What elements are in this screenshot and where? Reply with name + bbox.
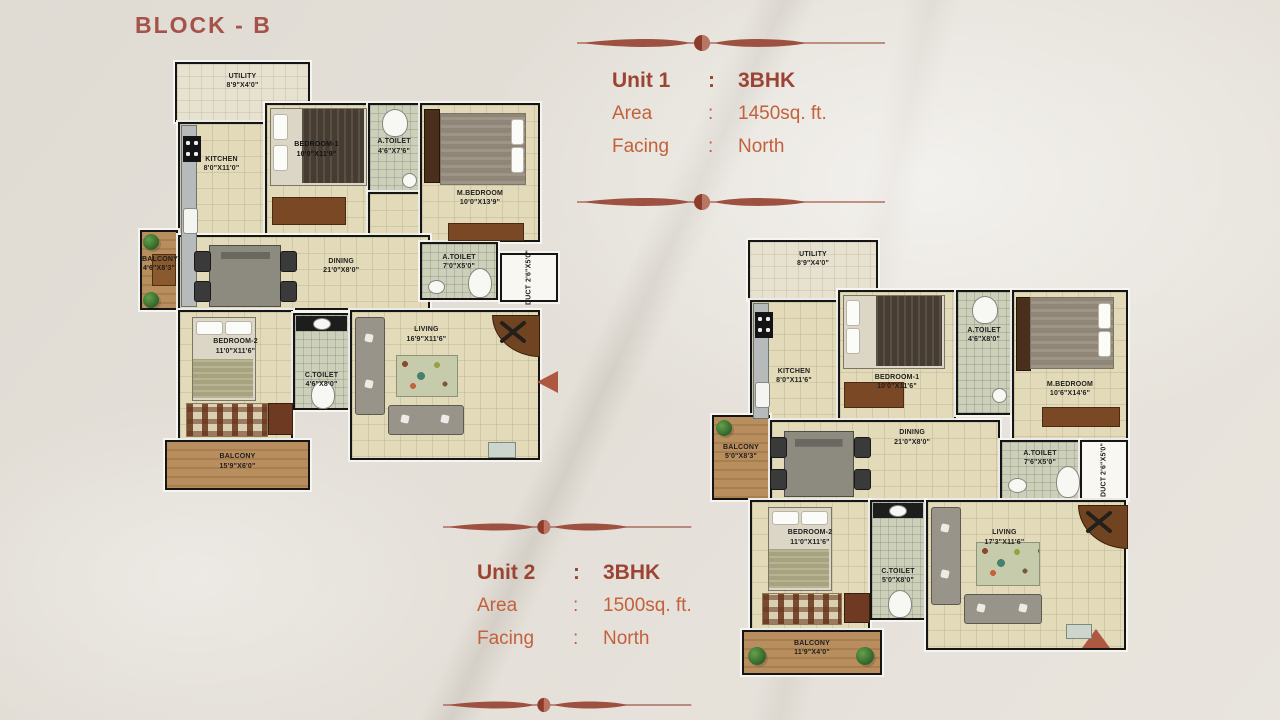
unit2-title-label: Unit 2 [477, 561, 571, 585]
room-name: BALCONY [723, 444, 759, 451]
room-name: A.TOILET [377, 138, 410, 145]
ornament-divider [577, 193, 887, 211]
block-title: BLOCK - B [135, 12, 272, 39]
pillow [273, 114, 288, 140]
room-dims: 8'9"X4'0" [797, 260, 829, 267]
toilet [1056, 466, 1080, 498]
room-name: BEDROOM-2 [788, 529, 833, 536]
unit2-facing-label: Facing [477, 628, 571, 650]
room-dims: 17'3"X11'6" [985, 539, 1025, 546]
room-name: M.BEDROOM [1047, 381, 1093, 388]
room-dims: 5'0"X8'3" [725, 453, 757, 460]
plan1-room-balcony-left: BALCONY4'6"X8'3" [140, 230, 178, 310]
room-name: M.BEDROOM [457, 190, 503, 197]
plan2-room-kitchen: KITCHEN8'0"X11'6" [750, 300, 838, 420]
dining-table [209, 245, 281, 307]
rug [186, 403, 268, 437]
room-dims: 15'9"X6'0" [219, 463, 255, 470]
ornament-divider [443, 519, 693, 535]
room-dims: 21'0"X8'0" [894, 439, 930, 446]
room-name: KITCHEN [205, 156, 238, 163]
sofa [388, 405, 464, 435]
plan2-room-mbedroom: M.BEDROOM10'6"X14'6" [1012, 290, 1128, 440]
room-dims: 10'6"X14'6" [1050, 390, 1090, 397]
room-name: BALCONY [219, 453, 255, 460]
pillow [196, 321, 223, 335]
room-dims: 16'9"X11'6" [407, 336, 447, 343]
pillow [846, 300, 860, 326]
room-name: C.TOILET [305, 372, 338, 379]
plant [143, 292, 159, 308]
plan2-room-duct: DUCT 2'6"X5'0" [1080, 440, 1128, 500]
room-dims: 2'6"X5'0" [524, 250, 533, 282]
plan1-hall [368, 192, 420, 235]
room-dims: 7'6"X5'0" [1024, 459, 1056, 466]
toilet [972, 296, 998, 324]
room-name: BEDROOM-1 [875, 374, 920, 381]
room-name: C.TOILET [881, 568, 914, 575]
side-table [488, 442, 516, 458]
pillow [801, 511, 828, 525]
washbasin [992, 388, 1007, 403]
unit1-area-label: Area [612, 103, 706, 125]
unit2-area-value: 1500sq. ft. [603, 595, 692, 617]
room-dims: 8'0"X11'6" [776, 377, 812, 384]
unit2-type: 3BHK [603, 561, 692, 585]
unit2-area-label: Area [477, 595, 571, 617]
pillow [225, 321, 252, 335]
room-name: UTILITY [229, 73, 257, 80]
wardrobe [844, 593, 870, 623]
unit1-area-value: 1450sq. ft. [738, 103, 827, 125]
room-dims: 11'9"X4'0" [794, 649, 830, 656]
plan2-room-bedroom1: BEDROOM-110'0"X11'6" [838, 290, 956, 420]
unit2-sep2: : [571, 595, 603, 617]
room-name: A.TOILET [967, 327, 1000, 334]
room-name: BALCONY [142, 256, 178, 263]
bench [448, 223, 524, 241]
washbasin [889, 505, 907, 517]
unit2-sep: : [571, 561, 603, 585]
unit1-facing-value: North [738, 136, 827, 158]
plan2-room-balcony-bottom: BALCONY11'9"X4'0" [742, 630, 882, 675]
room-dims: 10'0"X13'9" [460, 199, 500, 206]
room-dims: 21'0"X8'0" [323, 267, 359, 274]
room-name: BALCONY [794, 640, 830, 647]
dining-chair [194, 281, 211, 302]
plant [716, 420, 732, 436]
plan2-room-living: LIVING17'3"X11'6" [926, 500, 1126, 650]
ornament-divider [443, 697, 693, 713]
plan1-room-living: LIVING16'9"X11'6" [350, 310, 540, 460]
plan2-room-dining: DINING21'0"X8'0" [770, 420, 1000, 500]
dining-chair [770, 469, 787, 490]
dining-chair [280, 281, 297, 302]
room-name: DINING [328, 258, 354, 265]
plan2-room-ctoilet: C.TOILET5'0"X8'0" [870, 500, 926, 620]
bedspread [193, 359, 253, 398]
bench [272, 197, 346, 225]
plan1-room-mbedroom: M.BEDROOM10'0"X13'9" [420, 103, 540, 242]
room-name: A.TOILET [442, 254, 475, 261]
room-name: UTILITY [799, 251, 827, 258]
plan1-room-duct: DUCT 2'6"X5'0" [500, 253, 558, 302]
plan2-room-balcony-left: BALCONY5'0"X8'3" [712, 415, 770, 500]
plan1-room-atoilet1: A.TOILET4'6"X7'6" [368, 103, 420, 192]
pillow [772, 511, 799, 525]
room-dims: 8'0"X11'0" [204, 165, 240, 172]
unit2-info: Unit 2 : 3BHK Area : 1500sq. ft. Facing … [477, 556, 692, 655]
rug [976, 542, 1040, 586]
room-dims: 4'6"X7'6" [378, 148, 410, 155]
pillow [511, 147, 524, 173]
ornament-divider [577, 34, 887, 52]
room-name: BEDROOM-1 [294, 141, 339, 148]
room-name: BEDROOM-2 [213, 338, 258, 345]
room-dims: 8'9"X4'0" [226, 82, 258, 89]
toilet [888, 590, 912, 618]
room-name: LIVING [992, 529, 1017, 536]
room-name: LIVING [414, 326, 439, 333]
room-dims: 4'6"X8'3" [143, 265, 175, 272]
washbasin [402, 173, 417, 188]
room-name: A.TOILET [1023, 450, 1056, 457]
plan1-room-dining: DINING21'0"X8'0" [178, 235, 430, 310]
plan1-room-bedroom1: BEDROOM-110'0"X11'9" [265, 103, 368, 238]
unit1-sep3: : [706, 136, 738, 158]
unit1-title-label: Unit 1 [612, 69, 706, 93]
plan2-room-bedroom2: BEDROOM-211'0"X11'6" [750, 500, 870, 630]
room-name: DUCT [524, 284, 533, 304]
room-dims: 7'0"X5'0" [443, 263, 475, 270]
plan1-room-atoilet2: A.TOILET7'0"X5'0" [420, 242, 498, 300]
sofa [931, 507, 961, 605]
plan1-room-bedroom2: BEDROOM-211'0"X11'6" [178, 310, 293, 440]
side-table [1066, 624, 1092, 639]
dining-chair [854, 469, 871, 490]
brochure-page: BLOCK - B Unit 1 : 3BHK Area : 1450sq. f… [0, 0, 1280, 720]
kitchen-sink [755, 382, 770, 408]
toilet [382, 109, 408, 137]
unit2-facing-value: North [603, 628, 692, 650]
pillow [1098, 303, 1111, 329]
room-dims: 4'6"X8'0" [968, 336, 1000, 343]
room-dims: 11'0"X11'6" [790, 539, 829, 546]
bedspread [876, 296, 942, 366]
dining-chair [770, 437, 787, 458]
unit1-sep: : [706, 69, 738, 93]
room-name: KITCHEN [778, 368, 811, 375]
entry-arrow-unit1 [537, 371, 558, 393]
rug [396, 355, 458, 397]
bedspread [769, 549, 829, 588]
unit1-facing-label: Facing [612, 136, 706, 158]
room-dims: 2'6"X5'0" [1099, 443, 1108, 475]
wardrobe [1016, 297, 1031, 371]
unit1-type: 3BHK [738, 69, 827, 93]
sofa [964, 594, 1042, 624]
room-dims: 4'6"X8'0" [305, 381, 337, 388]
pillow [1098, 331, 1111, 357]
pillow [846, 328, 860, 354]
plan2-room-atoilet2: A.TOILET7'6"X5'0" [1000, 440, 1080, 500]
room-name: DINING [899, 429, 925, 436]
room-dims: 11'0"X11'6" [216, 348, 255, 355]
wardrobe [424, 109, 440, 183]
dining-chair [194, 251, 211, 272]
pillow [511, 119, 524, 145]
room-dims: 10'0"X11'6" [877, 383, 917, 390]
room-dims: 10'0"X11'9" [297, 151, 337, 158]
unit1-sep2: : [706, 103, 738, 125]
unit1-info: Unit 1 : 3BHK Area : 1450sq. ft. Facing … [612, 64, 827, 163]
bench [1042, 407, 1120, 427]
stove-icon [755, 312, 773, 338]
plan2-room-atoilet1: A.TOILET4'6"X8'0" [956, 290, 1012, 415]
wardrobe [268, 403, 293, 435]
room-name: DUCT [1099, 477, 1108, 497]
plan1-room-balcony-bottom: BALCONY15'9"X6'0" [165, 440, 310, 490]
plant [143, 234, 159, 250]
floorplan-unit2: UTILITY8'9"X4'0" KITCHEN8'0"X11'6" BEDRO… [710, 235, 1135, 680]
kitchen-sink [183, 208, 198, 234]
washbasin [428, 280, 445, 294]
washbasin [1008, 478, 1027, 493]
room-dims: 5'0"X8'0" [882, 577, 914, 584]
toilet [468, 268, 492, 298]
unit2-sep3: : [571, 628, 603, 650]
rug [762, 593, 842, 625]
floorplan-unit1: UTILITY8'9"X4'0" KITCHEN8'0"X11'0" BEDRO… [138, 55, 568, 500]
